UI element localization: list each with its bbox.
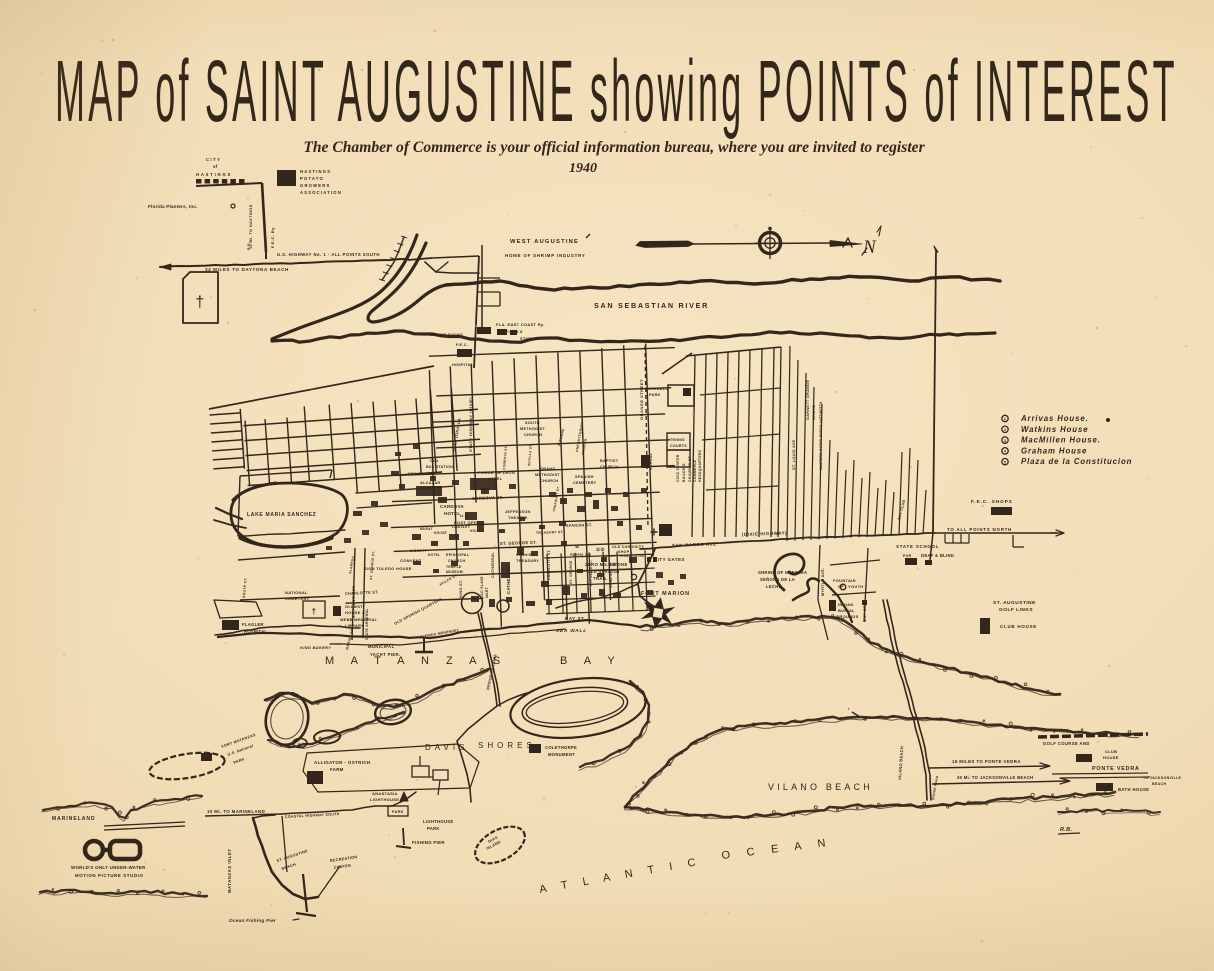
svg-text:MOTION PICTURE STUDIO: MOTION PICTURE STUDIO	[75, 873, 143, 878]
svg-text:SAN MARCO AVE: SAN MARCO AVE	[672, 541, 717, 548]
svg-text:STATE ARSENAL: STATE ARSENAL	[365, 608, 369, 640]
svg-text:CLUB: CLUB	[1105, 749, 1117, 754]
svg-text:TEMPLE: TEMPLE	[446, 565, 462, 569]
svg-text:THEATRE: THEATRE	[508, 516, 528, 520]
svg-text:PARK: PARK	[427, 826, 440, 831]
svg-text:The Chamber of Commerce is you: The Chamber of Commerce is your official…	[303, 139, 925, 156]
svg-text:HYPOLITA ST.: HYPOLITA ST.	[589, 560, 593, 586]
svg-text:TREASURY ST: TREASURY ST	[552, 486, 560, 512]
svg-text:SHRIMP DOCKS: SHRIMP DOCKS	[430, 333, 463, 337]
svg-text:LIBRARY: LIBRARY	[345, 624, 364, 628]
svg-text:TREASURY ST.: TREASURY ST.	[536, 530, 564, 535]
svg-text:HOSPITAL: HOSPITAL	[452, 363, 474, 367]
svg-text:HASTINGS: HASTINGS	[300, 169, 331, 174]
svg-text:③④: ③④	[608, 562, 617, 567]
svg-text:16 MILES TO PONTE VEDRA: 16 MILES TO PONTE VEDRA	[952, 759, 1021, 764]
svg-text:U.S.: U.S.	[460, 513, 469, 518]
svg-text:R.B.: R.B.	[1060, 827, 1072, 833]
svg-text:FOR: FOR	[903, 554, 912, 558]
svg-text:GROVE: GROVE	[812, 405, 816, 420]
svg-text:MUNICIPAL: MUNICIPAL	[368, 644, 395, 649]
svg-text:ORANGE STREET: ORANGE STREET	[639, 379, 644, 420]
svg-text:CATHEDRAL: CATHEDRAL	[506, 565, 511, 594]
svg-text:CHARLOTTE ST.: CHARLOTTE ST.	[547, 549, 551, 580]
svg-text:HOTEL: HOTEL	[444, 511, 460, 516]
svg-text:U.S. HIGHWAY No. 1 - ALL POINT: U.S. HIGHWAY No. 1 - ALL POINTS SOUTH	[277, 252, 380, 257]
svg-text:WORLD'S ONLY UNDER-WATER: WORLD'S ONLY UNDER-WATER	[71, 865, 146, 870]
svg-text:CATHEDRAL: CATHEDRAL	[491, 552, 495, 578]
svg-text:SEVILLA ST: SEVILLA ST	[527, 445, 533, 467]
svg-text:PARRIS INN: PARRIS INN	[570, 553, 592, 557]
svg-text:4: 4	[1004, 449, 1007, 454]
svg-text:O C E A N: O C E A N	[721, 836, 833, 861]
svg-text:2: 2	[1004, 427, 1007, 432]
svg-text:ST. GEORGE: ST. GEORGE	[569, 560, 573, 584]
svg-text:MARINELAND: MARINELAND	[52, 816, 96, 822]
svg-text:LECHE: LECHE	[766, 584, 782, 589]
svg-text:HOTEL: HOTEL	[428, 553, 440, 557]
svg-text:N: N	[862, 237, 877, 258]
svg-text:MAP of SAINT AUGUSTINE showing: MAP of SAINT AUGUSTINE showing POINTS of…	[55, 43, 1175, 141]
svg-text:CUNA ST.: CUNA ST.	[609, 570, 613, 588]
svg-text:PARK: PARK	[233, 757, 245, 765]
svg-text:1940: 1940	[569, 161, 597, 176]
svg-text:CEMETERY: CEMETERY	[573, 481, 597, 485]
svg-text:MYRTLE AVE.: MYRTLE AVE.	[821, 568, 825, 596]
svg-text:Florida Planters, Inc.: Florida Planters, Inc.	[148, 204, 198, 209]
svg-text:CHURCH: CHURCH	[581, 438, 588, 455]
svg-text:(DIXIE HIGHWAY): (DIXIE HIGHWAY)	[742, 530, 787, 537]
svg-text:⑤: ⑤	[575, 544, 580, 549]
svg-text:Arrivas House.: Arrivas House.	[1020, 414, 1089, 423]
svg-text:OLD: OLD	[430, 459, 439, 463]
svg-text:MASTERS OUTER NORTH ANTONETTA: MASTERS OUTER NORTH ANTONETTA	[819, 401, 823, 470]
svg-text:HOUSE: HOUSE	[1103, 755, 1119, 760]
svg-text:YACHT PIER.: YACHT PIER.	[370, 652, 401, 657]
svg-text:GARNETT ORANGE: GARNETT ORANGE	[806, 380, 810, 420]
svg-text:Plaza de la Constitucion: Plaza de la Constitucion	[1021, 457, 1132, 466]
svg-text:B A Y: B A Y	[560, 655, 622, 667]
svg-text:DEAF & BLIND: DEAF & BLIND	[921, 553, 954, 558]
svg-text:ST. GEORGE ST.: ST. GEORGE ST.	[500, 540, 537, 546]
svg-text:COURTS: COURTS	[670, 444, 687, 448]
svg-text:†: †	[195, 294, 204, 311]
svg-text:Watkins House: Watkins House	[1021, 425, 1088, 434]
svg-text:5: 5	[1004, 459, 1007, 464]
svg-text:JEFFERSON: JEFFERSON	[505, 510, 531, 514]
svg-text:FISHING PIER: FISHING PIER	[412, 840, 445, 845]
svg-text:ALCAZAR: ALCAZAR	[420, 481, 440, 485]
svg-text:CHURCH: CHURCH	[524, 433, 542, 437]
svg-text:SHORE ROAD: SHORE ROAD	[931, 775, 939, 800]
svg-text:CHARLOTTE ST.: CHARLOTTE ST.	[345, 590, 379, 596]
svg-text:BEACH: BEACH	[281, 863, 297, 871]
svg-text:HOTEL: HOTEL	[488, 477, 503, 481]
svg-text:†: †	[312, 607, 317, 616]
svg-text:METHODIST: METHODIST	[535, 473, 560, 477]
svg-text:LAKE MARIA SANCHEZ: LAKE MARIA SANCHEZ	[247, 512, 316, 518]
svg-text:30 Mi. TO JACKSONVILLE BEACH: 30 Mi. TO JACKSONVILLE BEACH	[957, 775, 1034, 780]
svg-text:MATANZAS INLET: MATANZAS INLET	[227, 848, 232, 893]
svg-text:BURIAL: BURIAL	[838, 608, 855, 613]
svg-text:BATH HOUSE: BATH HOUSE	[1118, 787, 1149, 792]
svg-text:CHAMBER OF: CHAMBER OF	[688, 456, 692, 482]
svg-text:CITY GATES: CITY GATES	[654, 557, 685, 562]
svg-text:SEÑORA DE LA: SEÑORA DE LA	[760, 577, 795, 582]
svg-text:FOUNTAIN: FOUNTAIN	[833, 578, 856, 583]
svg-text:METHODIST: METHODIST	[520, 427, 545, 431]
svg-text:WEST AUGUSTINE: WEST AUGUSTINE	[510, 239, 579, 245]
svg-text:1: 1	[1004, 416, 1007, 421]
svg-text:R.R.: R.R.	[247, 242, 251, 250]
svg-text:LIGHTHOUSE: LIGHTHOUSE	[370, 797, 399, 802]
svg-text:STATE SCHOOL: STATE SCHOOL	[896, 544, 939, 549]
svg-text:F.E.C.: F.E.C.	[456, 343, 468, 347]
svg-text:CLUB HOUSE: CLUB HOUSE	[1000, 624, 1037, 629]
svg-text:HOTEL: HOTEL	[422, 487, 437, 491]
svg-text:CENTER: CENTER	[334, 864, 352, 870]
svg-text:PARK: PARK	[649, 393, 661, 397]
svg-text:GOLF COURSE AND: GOLF COURSE AND	[1043, 741, 1090, 746]
svg-text:BAY CLUB: BAY CLUB	[897, 499, 906, 520]
svg-text:FLA. EAST COAST Ry.: FLA. EAST COAST Ry.	[496, 322, 545, 327]
svg-text:GRAND: GRAND	[540, 467, 555, 471]
svg-text:CORDOVA ST.: CORDOVA ST.	[472, 495, 504, 501]
svg-text:MART: MART	[485, 586, 489, 598]
svg-text:ST. AUGUSTINE: ST. AUGUSTINE	[993, 600, 1036, 606]
svg-text:HEADQUARTERS: HEADQUARTERS	[698, 449, 702, 482]
svg-text:TENNIS: TENNIS	[670, 438, 685, 442]
svg-text:GOLF LINKS: GOLF LINKS	[999, 607, 1033, 613]
svg-text:HOME OF SHRIMP INDUSTRY: HOME OF SHRIMP INDUSTRY	[505, 253, 586, 258]
svg-text:3: 3	[1004, 438, 1007, 443]
svg-text:ANASTASIA: ANASTASIA	[372, 791, 398, 796]
svg-text:SHORES: SHORES	[478, 741, 536, 750]
svg-text:HOSPITAL: HOSPITAL	[244, 629, 267, 634]
svg-text:VILANO BEACH: VILANO BEACH	[768, 782, 873, 792]
svg-text:DAVIS: DAVIS	[425, 743, 468, 752]
svg-text:①②: ①②	[596, 547, 605, 552]
svg-text:F.E.C. Ry: F.E.C. Ry	[270, 227, 275, 248]
svg-text:CHURCH: CHURCH	[540, 479, 558, 483]
svg-text:FLAGLER: FLAGLER	[242, 622, 264, 627]
svg-text:PONTE VEDRA: PONTE VEDRA	[1092, 766, 1140, 772]
svg-text:TREASURY: TREASURY	[516, 559, 539, 563]
svg-text:10 Mi. TO MARINELAND: 10 Mi. TO MARINELAND	[207, 809, 265, 814]
svg-text:BASEBALL: BASEBALL	[645, 387, 668, 391]
svg-text:CHURCH: CHURCH	[448, 559, 465, 563]
svg-text:COLETHORPE: COLETHORPE	[545, 745, 577, 750]
svg-text:RECREATION: RECREATION	[330, 855, 358, 863]
svg-text:FARM: FARM	[330, 767, 344, 772]
svg-text:CARDOVA: CARDOVA	[440, 504, 465, 509]
svg-text:HASTINGS: HASTINGS	[196, 172, 232, 177]
svg-text:SCHOOL: SCHOOL	[649, 452, 653, 470]
svg-text:GROUNDS: GROUNDS	[836, 614, 859, 619]
svg-text:MARINE ST: MARINE ST	[345, 628, 355, 650]
svg-text:SEA WALL: SEA WALL	[556, 628, 587, 634]
svg-text:MURAT: MURAT	[420, 527, 434, 531]
svg-text:t: t	[848, 706, 850, 711]
svg-text:KING BAKERY: KING BAKERY	[300, 645, 331, 650]
svg-text:MacMillen House.: MacMillen House.	[1021, 436, 1101, 445]
svg-text:TO ALL POINTS NORTH: TO ALL POINTS NORTH	[947, 527, 1012, 532]
svg-text:INDIAN: INDIAN	[838, 602, 854, 607]
svg-text:ASSOCIATION: ASSOCIATION	[300, 190, 342, 195]
svg-text:EPISCOPAL: EPISCOPAL	[446, 553, 470, 557]
svg-text:ST. LOUIS AVE: ST. LOUIS AVE	[792, 439, 796, 470]
svg-text:CIVIC CENTER: CIVIC CENTER	[676, 454, 680, 482]
svg-text:Graham House: Graham House	[1021, 446, 1087, 455]
svg-text:of: of	[213, 164, 218, 169]
svg-text:STATION: STATION	[520, 336, 539, 341]
svg-text:KING ST.: KING ST.	[459, 580, 463, 598]
svg-text:F.E.C. SHOPS: F.E.C. SHOPS	[971, 499, 1013, 504]
svg-text:HOUSE &: HOUSE &	[345, 610, 365, 615]
svg-text:BEACH: BEACH	[1152, 782, 1166, 786]
svg-text:MONUMENT: MONUMENT	[548, 752, 575, 757]
svg-text:SOUTH ST.: SOUTH ST.	[242, 577, 248, 598]
svg-text:M A T A N Z A S: M A T A N Z A S	[325, 655, 507, 667]
svg-text:BUILDING: BUILDING	[682, 463, 686, 482]
svg-text:SHRINE OF NUESTRA: SHRINE OF NUESTRA	[758, 570, 807, 575]
svg-text:Ocean Fishing Pier: Ocean Fishing Pier	[229, 918, 276, 923]
svg-text:CORDOVA ST: CORDOVA ST	[502, 446, 508, 470]
svg-text:LIGHTHOUSE: LIGHTHOUSE	[423, 819, 453, 824]
svg-text:SPANISH ST.: SPANISH ST.	[566, 523, 593, 528]
svg-text:OLD CURIOSITY: OLD CURIOSITY	[612, 545, 644, 549]
svg-text:SPANISH: SPANISH	[575, 475, 594, 479]
svg-text:SOUTH: SOUTH	[525, 421, 540, 425]
svg-text:BAPTIST: BAPTIST	[600, 459, 619, 463]
svg-text:BUS STATION: BUS STATION	[426, 465, 453, 469]
svg-text:PONCE DE LEON: PONCE DE LEON	[478, 470, 515, 475]
svg-text:OLDEST: OLDEST	[345, 604, 363, 609]
svg-text:LINDSLEY: LINDSLEY	[452, 525, 471, 529]
svg-text:CONVENT: CONVENT	[400, 558, 422, 563]
svg-text:ST. AUGUSTINE: ST. AUGUSTINE	[276, 849, 308, 863]
svg-text:PARK: PARK	[392, 810, 404, 814]
svg-text:OLDEST FRAME HOUSE: OLDEST FRAME HOUSE	[604, 554, 645, 558]
svg-text:GRANADA ST.: GRANADA ST.	[408, 472, 437, 476]
svg-text:TO JACKSONVILLE: TO JACKSONVILLE	[1143, 776, 1181, 780]
svg-text:POTATO: POTATO	[300, 176, 324, 181]
svg-text:SAN SEBASTIAN RIVER: SAN SEBASTIAN RIVER	[594, 301, 709, 310]
svg-text:HOUSE: HOUSE	[434, 531, 447, 535]
svg-text:ALLIGATOR - OSTRICH: ALLIGATOR - OSTRICH	[314, 760, 370, 765]
svg-text:VILANO BEACH: VILANO BEACH	[897, 746, 904, 780]
svg-text:BAY ST.: BAY ST.	[565, 616, 586, 621]
svg-text:A T L A N T I C: A T L A N T I C	[538, 856, 702, 896]
svg-text:CHURCH: CHURCH	[600, 465, 618, 469]
svg-text:CITY: CITY	[206, 157, 222, 162]
svg-text:OFFICES &: OFFICES &	[500, 330, 523, 334]
svg-text:WEBB MEMORIAL: WEBB MEMORIAL	[340, 618, 378, 622]
svg-text:GROWERS: GROWERS	[300, 183, 331, 188]
svg-text:CEMETERY: CEMETERY	[285, 596, 310, 601]
svg-text:COMMERCE: COMMERCE	[693, 459, 697, 482]
svg-text:LIGGETT: LIGGETT	[410, 549, 427, 553]
svg-text:YOUTH: YOUTH	[848, 584, 864, 589]
svg-text:NATIONAL: NATIONAL	[285, 590, 308, 595]
svg-text:SPANISH: SPANISH	[516, 553, 535, 557]
svg-text:OLD SLAVE: OLD SLAVE	[480, 576, 484, 598]
svg-text:HOUSE: HOUSE	[470, 529, 483, 533]
